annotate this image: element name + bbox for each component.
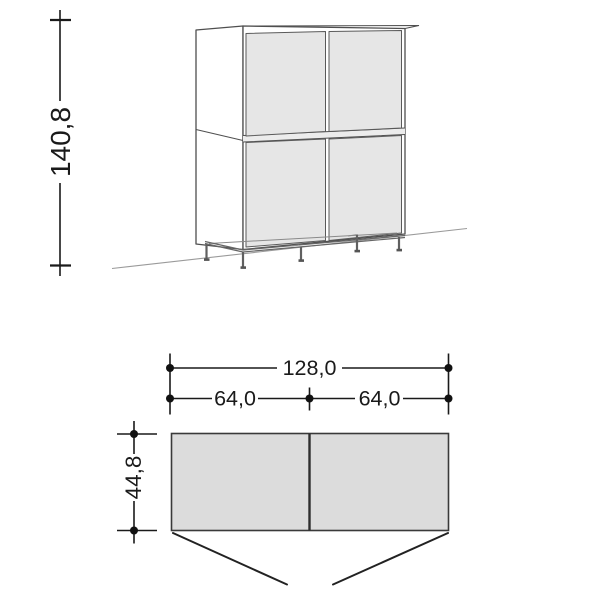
dimension-dot [166, 364, 174, 372]
dimension-dot [166, 395, 174, 403]
dimension-dot [445, 395, 453, 403]
depth-dimension: 44,8 [117, 421, 157, 544]
door-lower-right [329, 136, 402, 241]
door-upper-left [246, 32, 326, 137]
dimension-dot [445, 364, 453, 372]
door-swing-right [333, 533, 448, 585]
half-width-right-label: 64,0 [359, 387, 401, 411]
plan-view: 128,0 64,0 64,0 44,8 [117, 354, 453, 585]
height-dimension-label: 140,8 [45, 107, 76, 177]
width-dimension-label: 128,0 [283, 356, 337, 380]
height-dimension: 140,8 [45, 10, 76, 276]
dimension-dot [130, 527, 138, 535]
depth-dimension-label: 44,8 [121, 456, 146, 500]
door-upper-right [329, 31, 402, 132]
dimension-dot [306, 395, 314, 403]
door-lower-left [246, 139, 326, 247]
door-swing-left [173, 533, 287, 585]
width-dimension: 128,0 [166, 356, 453, 380]
side-panel [196, 26, 243, 250]
half-width-left-label: 64,0 [214, 387, 256, 411]
dimension-drawing: 140,8 [0, 0, 600, 600]
cabinet-perspective [112, 26, 467, 269]
dimension-dot [130, 430, 138, 438]
